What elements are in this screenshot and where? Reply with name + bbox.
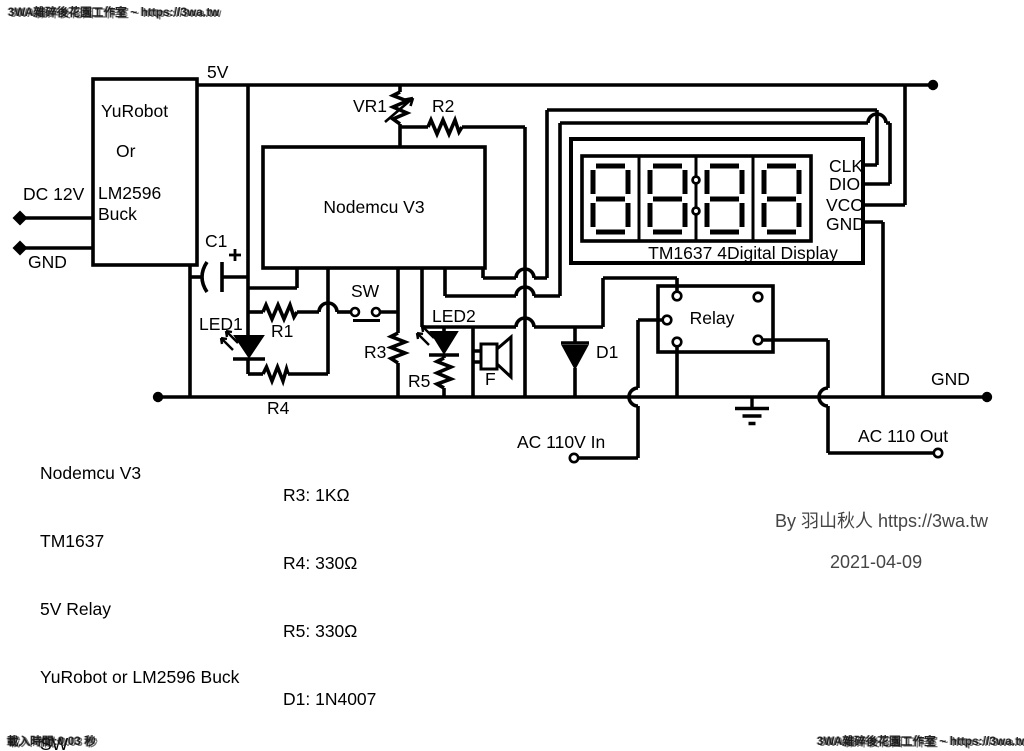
earth-ground-symbol [735,397,769,424]
sw-contact-left [351,308,359,316]
relay-pin-com [663,316,672,325]
author-credit: By 羽山秋人 https://3wa.tw [775,507,988,533]
digit-2 [650,166,685,232]
label-5v: 5V [207,62,229,82]
buck-label-3: LM2596 [98,183,161,203]
relay-pin-no [754,293,763,302]
buzzer-horn [497,337,511,377]
vcc-net [863,85,905,205]
sw-contact-right [372,308,380,316]
label-led2: LED2 [432,306,476,326]
label-r3: R3 [364,342,386,362]
resistor-r5 [437,355,451,397]
buck-label-2: Or [116,141,136,161]
switch-sw [337,308,398,321]
led1 [221,331,265,374]
resistor-r3 [391,268,405,397]
label-vr1: VR1 [353,96,387,116]
resistor-r1 [248,305,319,319]
led2-emission-arrows [417,326,434,345]
relay-pin-coil-bottom [673,338,682,347]
bom-column-2: R3: 1KΩ R4: 330Ω R5: 330Ω D1: 1N4007 F: … [283,439,424,751]
label-r4: R4 [267,398,290,418]
date: 2021-04-09 [830,552,922,573]
label-f: F [485,369,496,389]
led1-triangle [235,336,263,357]
bom-column-1: Nodemcu V3 TM1637 5V Relay YuRobot or LM… [40,417,239,751]
bom-item: R5: 330Ω [283,620,424,643]
digit-1 [593,166,628,232]
rail-gnd-right-dot [982,392,992,402]
dc-input-terminals [13,211,94,256]
ac-out-terminal [934,449,942,457]
r1-zigzag [263,305,297,319]
relay-label: Relay [690,308,735,328]
buck-label-1: YuRobot [101,101,168,121]
schematic-page: 5V DC 12V GND YuRobot Or LM2596 Buck C1 … [0,0,1024,751]
display-pin-vcc: VCC [826,195,863,215]
bom-item: Nodemcu V3 [40,462,239,485]
digit-4 [764,166,799,232]
bom-item: TM1637 [40,530,239,553]
display-title: TM1637 4Digital Display [648,243,838,263]
dio-net [445,114,890,296]
vr1-arrow [385,98,413,122]
colon-dot-top [693,177,700,184]
watermark-load-time: 載入時間:0.03 秒 [7,733,96,749]
led2 [417,326,459,355]
label-ac-out: AC 110 Out [858,426,948,446]
mcu-label: Nodemcu V3 [323,197,424,217]
bom-item: D1: 1N4007 [283,688,424,711]
label-gnd-rail: GND [931,369,970,389]
r2-zigzag [428,120,462,134]
display-gnd-net [863,222,883,397]
bom-item: YuRobot or LM2596 Buck [40,666,239,689]
c1-curved-plate [202,262,207,292]
bom-item: R4: 330Ω [283,552,424,575]
relay-module [658,286,773,397]
ac-in-terminal [570,454,578,462]
r3-zigzag [391,333,405,363]
rail-gnd-left-dot [153,392,163,402]
bom-item: 5V Relay [40,598,239,621]
colon-dot-bottom [693,208,700,215]
watermark-top-left: 3WA雜碎後花園工作室 ~ https://3wa.tw [8,4,220,20]
label-ac-in: AC 110V In [517,432,605,452]
label-c1: C1 [205,231,227,251]
label-gnd-in: GND [28,252,67,272]
display-pin-clk: CLK [829,156,863,176]
r4-zigzag [263,367,288,381]
display-pin-gnd: GND [826,214,865,234]
c1-plus-sign [229,249,241,261]
diode-d1 [561,327,589,397]
pot-vr1 [385,85,413,147]
display-pin-dio: DIO [829,174,860,194]
label-sw: SW [351,281,380,301]
digit-3 [707,166,742,232]
watermark-bottom-right: 3WA雜碎後花園工作室 ~ https://3wa.tw [817,733,1024,749]
bom-item: R3: 1KΩ [283,484,424,507]
buzzer-body [481,344,497,369]
label-dc12v: DC 12V [23,184,85,204]
r5-zigzag [437,358,451,388]
rail-5v-end-dot [928,80,938,90]
net-5v-node [248,85,297,336]
label-led1: LED1 [199,314,243,334]
label-r2: R2 [432,96,454,116]
label-d1: D1 [596,342,618,362]
buck-label-4: Buck [98,204,137,224]
relay-pin-coil-top [673,292,682,301]
label-r5: R5 [408,371,430,391]
label-r1: R1 [271,321,293,341]
relay-pin-nc [754,336,763,345]
rail-5v [197,80,938,90]
d1-triangle [563,346,587,368]
led2-triangle [431,332,457,353]
